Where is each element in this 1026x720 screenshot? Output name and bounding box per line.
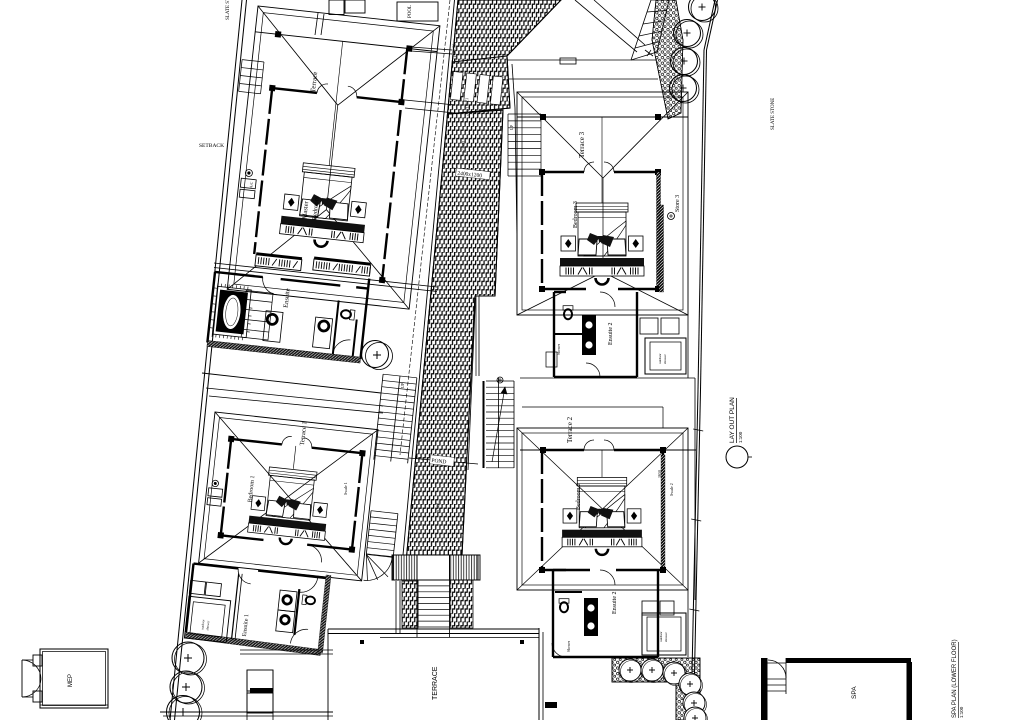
svg-text:outdoor: outdoor [659,631,663,642]
svg-text:Shower: Shower [567,640,571,652]
svg-text:UP: UP [509,124,514,130]
svg-text:Swale 1: Swale 1 [343,482,348,495]
svg-text:POOL: POOL [408,5,413,18]
svg-text:shower: shower [664,631,668,642]
svg-text:outdoor: outdoor [658,353,662,364]
svg-text:SPA PLAN (LOWER FLOOR): SPA PLAN (LOWER FLOOR) [952,639,958,718]
svg-text:Terrace 3: Terrace 3 [578,131,586,158]
svg-text:1:100: 1:100 [738,431,743,443]
svg-text:Ensuite 2: Ensuite 2 [612,592,618,615]
svg-text:A/C: A/C [248,181,254,188]
svg-text:shower: shower [663,353,667,364]
svg-text:TERRACE: TERRACE [432,666,439,700]
svg-text:Swale 2: Swale 2 [669,483,674,496]
svg-text:MEP: MEP [68,674,74,687]
svg-text:1650: 1650 [657,470,662,478]
svg-text:LAY OUT PLAN: LAY OUT PLAN [729,397,736,443]
svg-text:SLATE STONE: SLATE STONE [771,98,776,130]
svg-text:Shower: Shower [557,343,561,355]
svg-text:SPA: SPA [851,686,858,699]
svg-text:Terrace 2: Terrace 2 [566,416,574,443]
svg-text:SLATE STONE: SLATE STONE [226,0,231,20]
svg-text:1:100: 1:100 [959,706,964,718]
svg-text:Store 3: Store 3 [675,195,681,212]
svg-text:SETBACK: SETBACK [199,143,224,149]
svg-text:Ensuite 2: Ensuite 2 [608,323,614,346]
